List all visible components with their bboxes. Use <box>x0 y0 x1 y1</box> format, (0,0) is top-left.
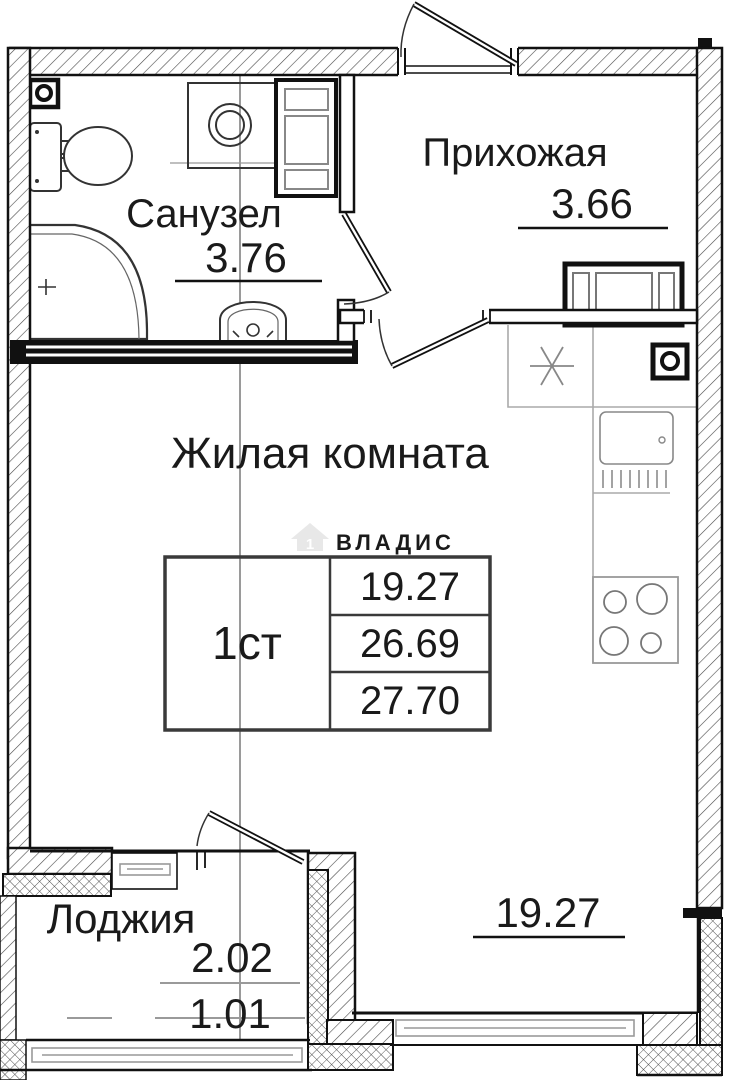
bathroom-sink-icon <box>220 302 286 342</box>
loggia-label: Лоджия <box>47 895 196 942</box>
loggia-area-reduced: 1.01 <box>189 990 271 1037</box>
unit-area-main: 26.69 <box>360 622 460 666</box>
unit-living-area: 19.27 <box>360 565 460 609</box>
floor-plan-page: 1 ВЛАДИС 1ст 19.27 26.69 27.70 Санузел 3… <box>0 0 734 1080</box>
bathroom-cabinet-icon <box>276 80 336 196</box>
bathroom-area: 3.76 <box>205 234 287 281</box>
watermark-house-number: 1 <box>306 536 314 553</box>
watermark-brand: ВЛАДИС <box>336 530 455 555</box>
kitchen-sink-icon <box>600 412 673 464</box>
vent-duct-icon <box>30 80 58 107</box>
hallway-label: Прихожая <box>422 131 607 175</box>
hallway-area: 3.66 <box>551 180 633 227</box>
toilet-icon <box>30 123 132 191</box>
unit-area-total: 27.70 <box>360 679 460 723</box>
stove-icon <box>593 577 678 663</box>
loggia-area: 2.02 <box>191 934 273 981</box>
floor-plan: 1 ВЛАДИС 1ст 19.27 26.69 27.70 Санузел 3… <box>0 0 734 1080</box>
vent-duct-icon <box>653 345 687 378</box>
living-room-area: 19.27 <box>495 889 600 936</box>
unit-type-label: 1ст <box>212 617 282 669</box>
bathroom-label: Санузел <box>126 192 282 236</box>
living-room-label: Жилая комната <box>171 429 489 478</box>
